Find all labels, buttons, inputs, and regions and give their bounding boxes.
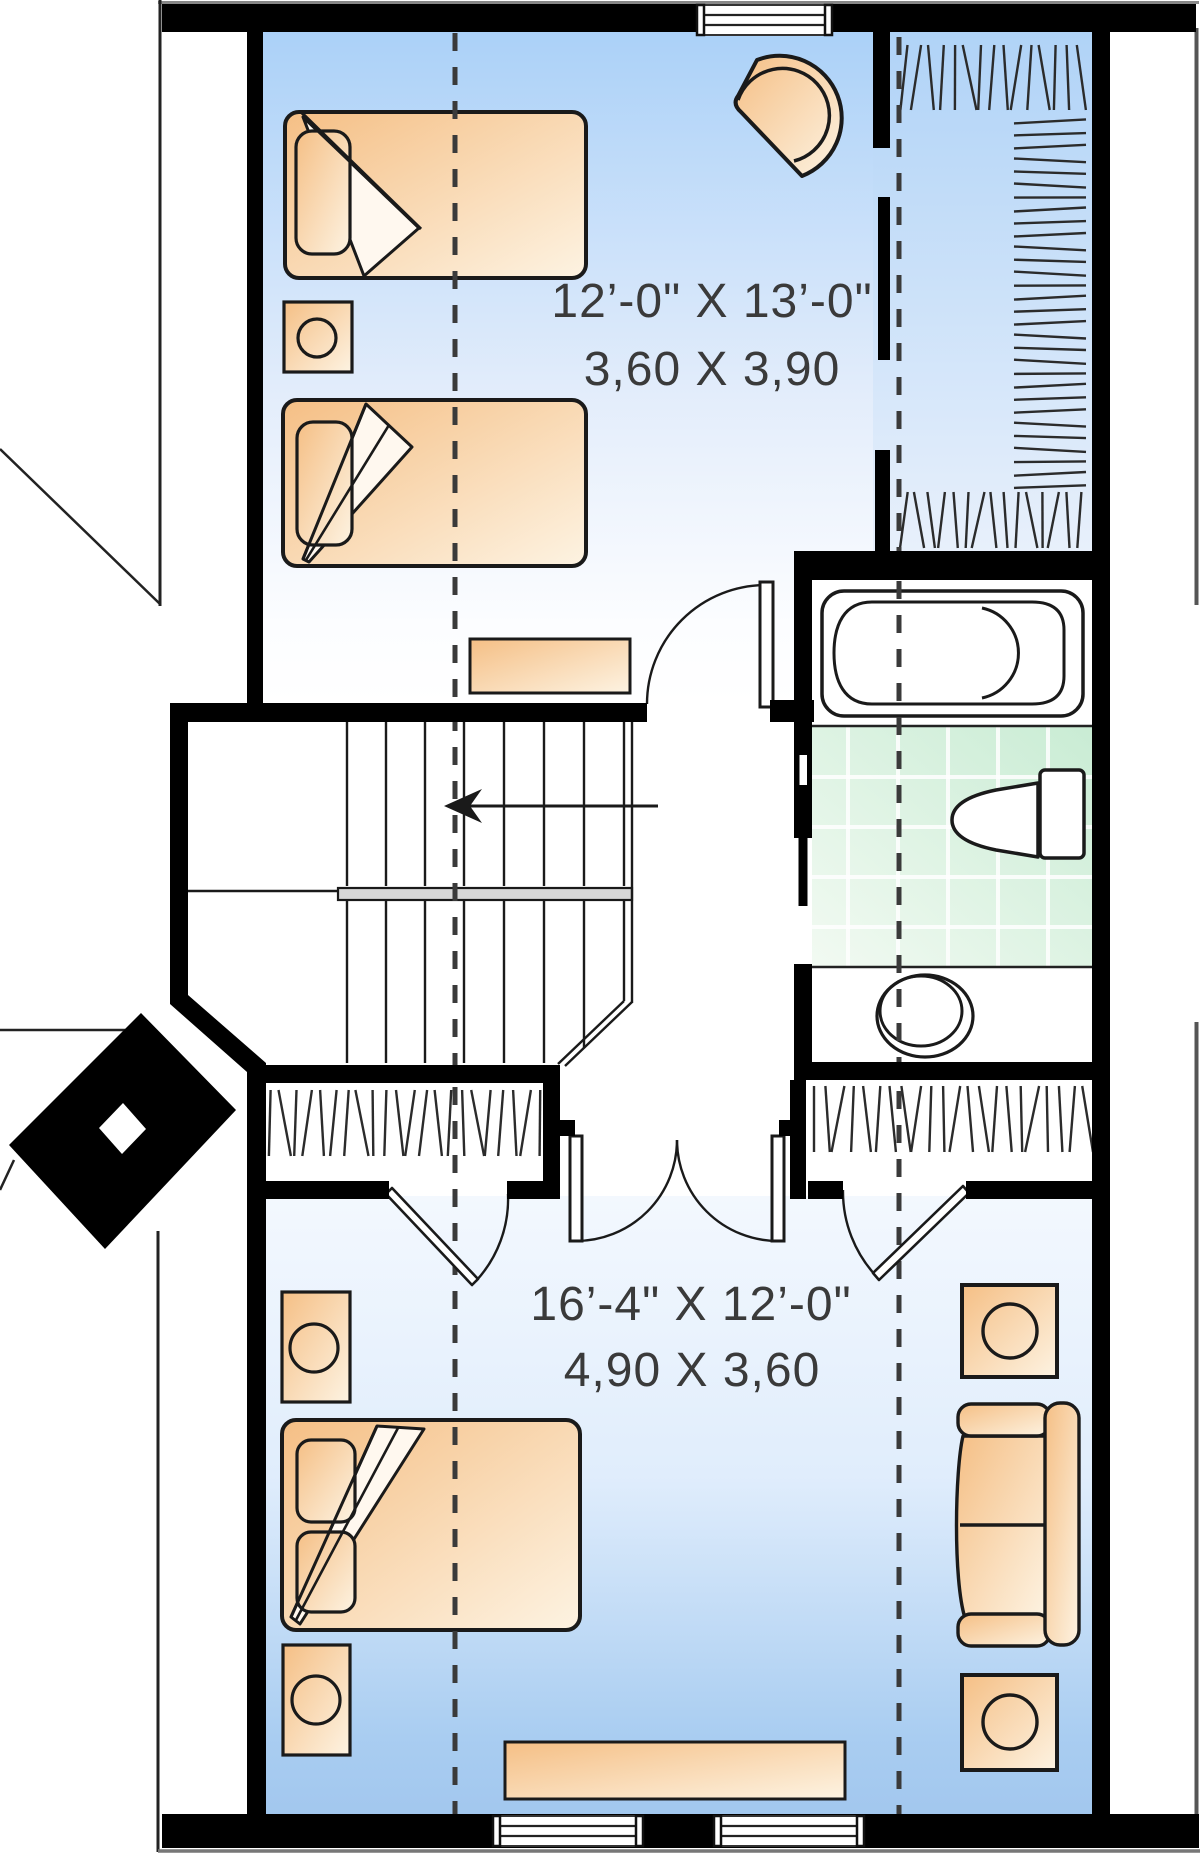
- svg-text:12’-0" X 13’-0": 12’-0" X 13’-0": [551, 275, 872, 328]
- svg-text:3,60 X 3,90: 3,60 X 3,90: [584, 343, 841, 396]
- svg-text:16’-4" X 12’-0": 16’-4" X 12’-0": [530, 1278, 851, 1331]
- svg-text:4,90 X 3,60: 4,90 X 3,60: [564, 1344, 821, 1397]
